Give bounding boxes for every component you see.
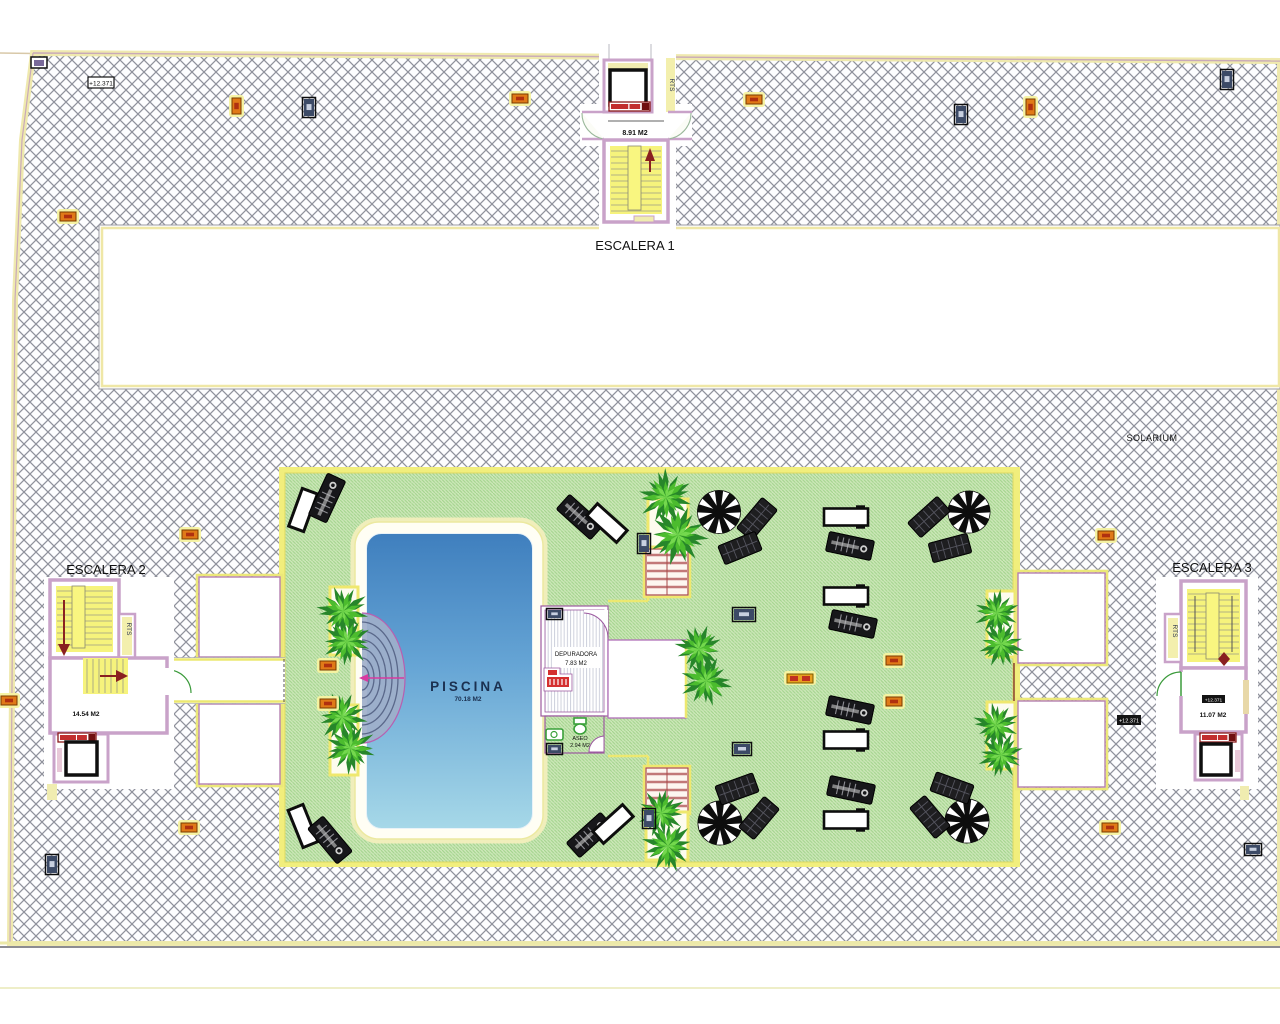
svg-text:ESCALERA 1: ESCALERA 1 <box>595 238 675 253</box>
svg-text:ESCALERA 3: ESCALERA 3 <box>1172 560 1252 575</box>
svg-text:70.18 M2: 70.18 M2 <box>454 696 481 703</box>
svg-text:11.07 M2: 11.07 M2 <box>1200 712 1227 719</box>
svg-text:8.91 M2: 8.91 M2 <box>622 130 647 137</box>
svg-text:+12.371: +12.371 <box>1205 698 1223 704</box>
svg-text:+12.371: +12.371 <box>89 81 113 88</box>
svg-text:RTS: RTS <box>1171 625 1178 639</box>
svg-text:+12.371: +12.371 <box>1119 719 1139 725</box>
svg-text:SOLARIUM: SOLARIUM <box>1126 433 1177 443</box>
svg-text:PISCINA: PISCINA <box>430 679 506 694</box>
svg-text:ESCALERA 2: ESCALERA 2 <box>66 562 146 577</box>
svg-text:RTS: RTS <box>125 623 132 637</box>
svg-text:2.94 M2: 2.94 M2 <box>570 743 590 749</box>
svg-text:7.83 M2: 7.83 M2 <box>565 661 587 667</box>
svg-text:RTS: RTS <box>668 79 675 93</box>
svg-text:ASEO: ASEO <box>572 736 588 742</box>
svg-text:DEPURADORA: DEPURADORA <box>555 652 597 658</box>
svg-text:14.54 M2: 14.54 M2 <box>72 711 99 718</box>
